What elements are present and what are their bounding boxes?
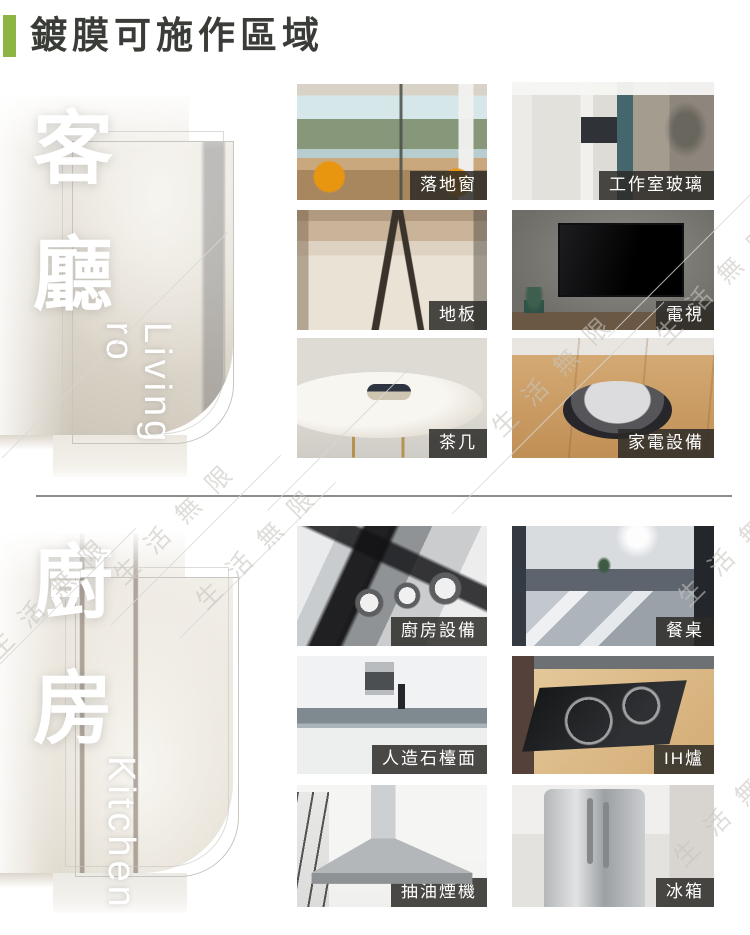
photo-label: 茶几 — [429, 429, 487, 458]
photo-card-appliances: 家電設備 — [512, 338, 714, 458]
photo-label: 地板 — [429, 301, 487, 330]
photo-label: 電視 — [656, 301, 714, 330]
photo-card-coffee-table: 茶几 — [297, 338, 487, 458]
photo-card-dining-table: 餐桌 — [512, 526, 714, 646]
kitchen-section-title-zh: 廚房 — [26, 540, 106, 792]
photo-card-kitchen-equipment: 廚房設備 — [297, 526, 487, 646]
photo-label: 工作室玻璃 — [599, 171, 714, 200]
photo-card-floor-window: 落地窗 — [297, 84, 487, 200]
photo-label: IH爐 — [654, 745, 714, 774]
photo-card-stone-countertop: 人造石檯面 — [297, 656, 487, 774]
title-accent-bar — [3, 15, 16, 57]
living-photo-left-stub — [0, 435, 53, 450]
photo-card-refrigerator: 冰箱 — [512, 785, 714, 907]
photo-card-floor: 地板 — [297, 210, 487, 330]
photo-label: 廚房設備 — [391, 617, 487, 646]
photo-label: 冰箱 — [656, 878, 714, 907]
kitchen-section-title-en: Kitchen — [102, 756, 140, 914]
photo-card-ih-stove: IH爐 — [512, 656, 714, 774]
photo-label: 餐桌 — [656, 617, 714, 646]
page-title: 鍍膜可施作區域 — [30, 12, 324, 60]
photo-label: 落地窗 — [410, 171, 487, 200]
kitchen-photo-left-stub — [0, 873, 53, 888]
living-section-title-en: Living ro — [100, 322, 176, 488]
photo-label: 人造石檯面 — [372, 745, 487, 774]
photo-label: 抽油煙機 — [391, 878, 487, 907]
photo-card-range-hood: 抽油煙機 — [297, 785, 487, 907]
section-divider — [36, 495, 732, 497]
coating-areas-page: 鍍膜可施作區域 客廳 Living ro 落地窗 工作室玻璃 地板 電視 茶几 … — [0, 0, 750, 935]
photo-card-studio-glass: 工作室玻璃 — [512, 82, 714, 200]
photo-card-tv: 電視 — [512, 210, 714, 330]
living-section-title-zh: 客廳 — [26, 106, 106, 358]
photo-label: 家電設備 — [618, 429, 714, 458]
